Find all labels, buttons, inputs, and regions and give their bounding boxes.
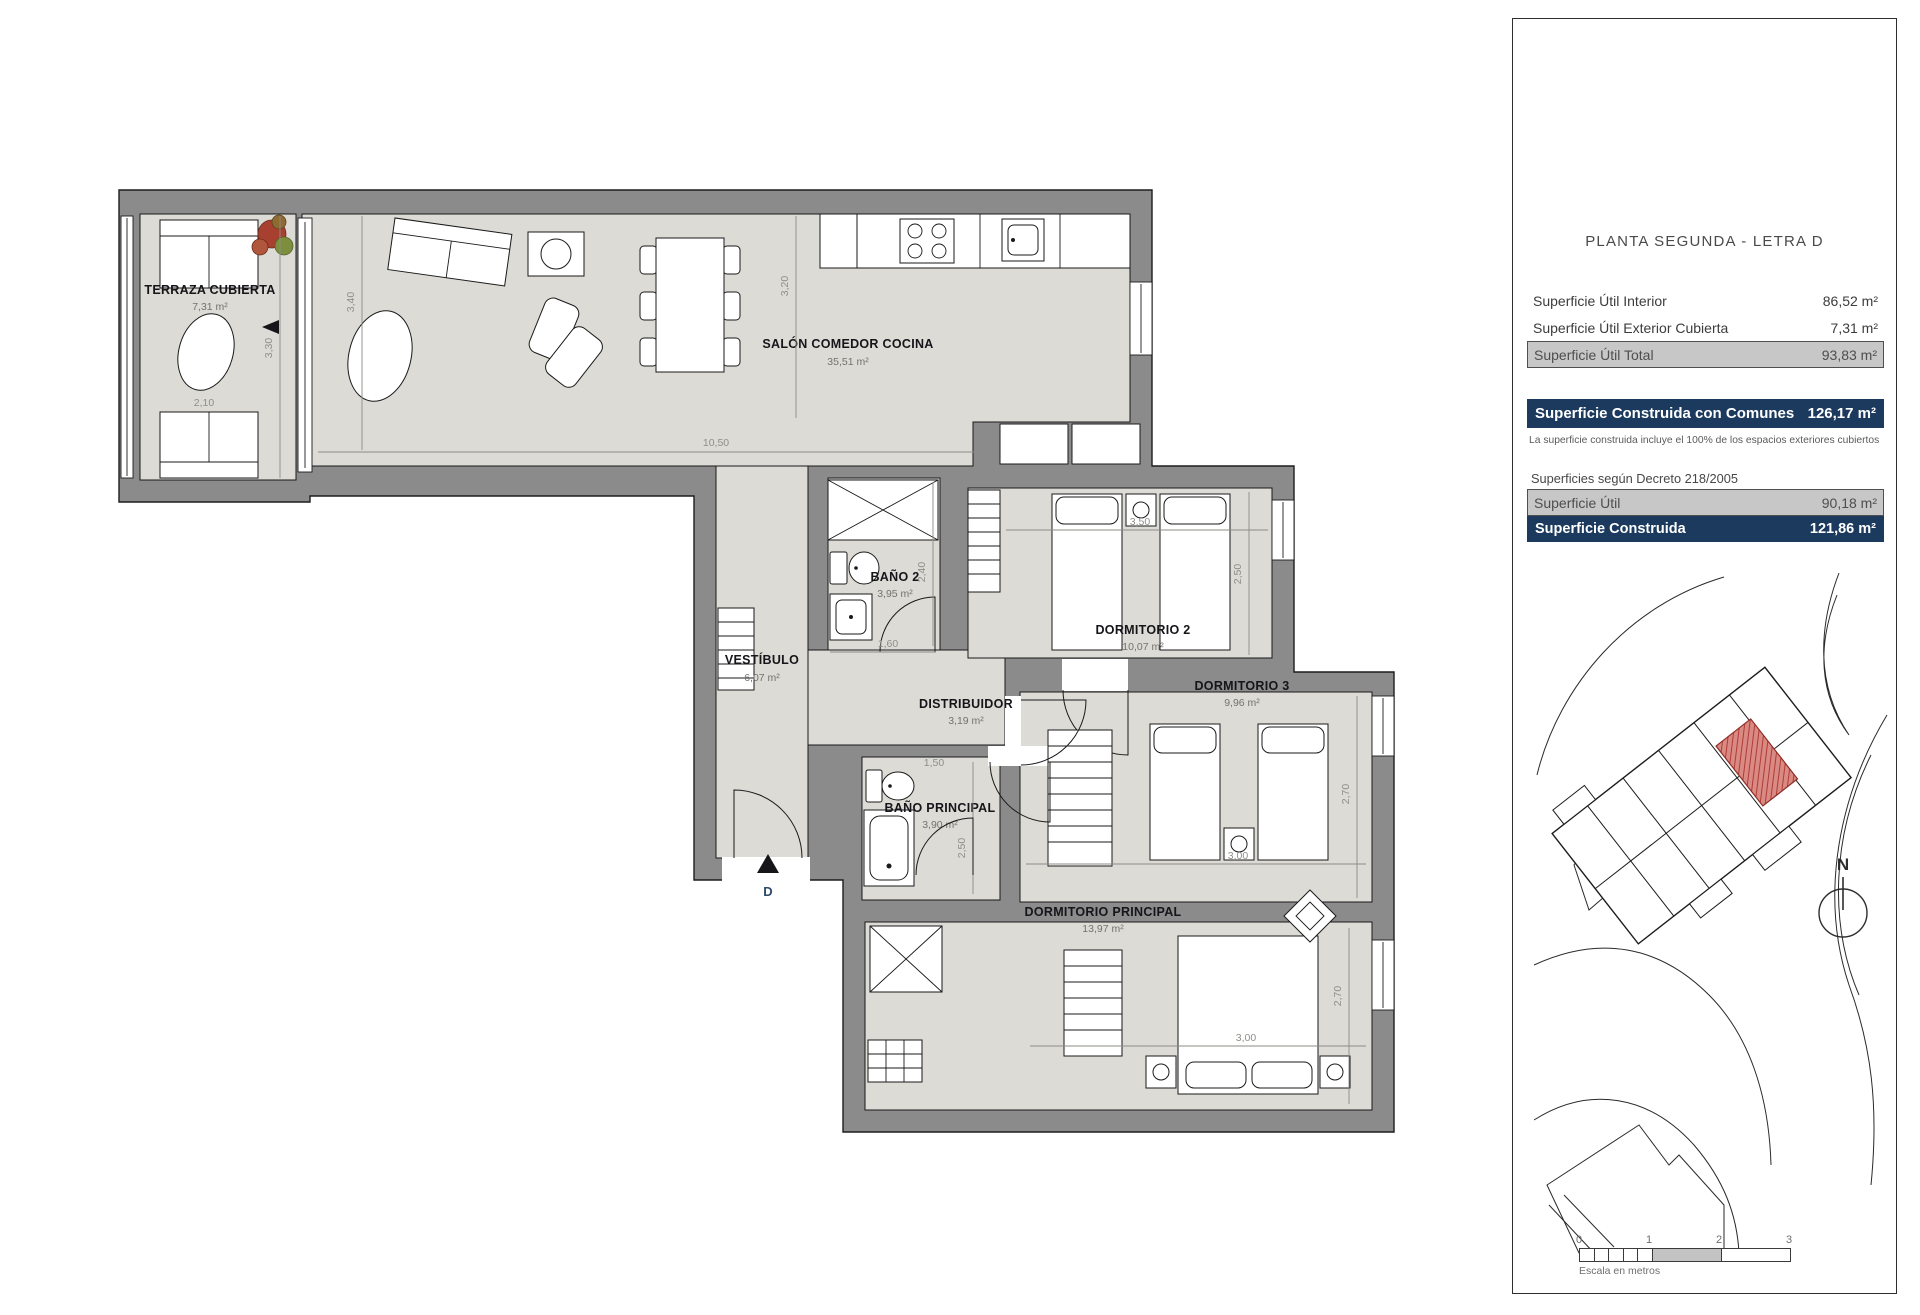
dim-dorm2-h: 2,50 [1232,564,1244,585]
fridge [820,214,857,268]
surface-row-value: 93,83 m² [1822,347,1877,363]
banop-label: BAÑO PRINCIPAL [885,800,996,815]
dim-salon-w: 10,50 [703,437,729,449]
banop-area: 3,90 m² [922,819,958,831]
surface-row-total: Superficie Útil Total 93,83 m² [1527,341,1884,368]
dorm2-area: 10,07 m² [1122,641,1164,653]
toilet-tank [830,552,847,584]
scale-tick: 3 [1786,1234,1792,1246]
salon-label: SALÓN COMEDOR COCINA [762,336,933,351]
terraza-area: 7,31 m² [192,301,228,313]
dim-terraza-w: 2,10 [194,397,215,409]
scale-strip [1579,1248,1791,1262]
distribuidor-area: 3,19 m² [948,715,984,727]
surface-row-label: Superficie Útil Exterior Cubierta [1533,320,1728,336]
table-lamp [541,239,571,269]
dormp-door-opening [988,746,1052,766]
dim-banop-h: 2,50 [956,838,968,859]
dorm2-closet [968,490,1000,592]
bano2-area: 3,95 m² [877,588,913,600]
floorplan-canvas: TERRAZA CUBIERTA 7,31 m² 3,30 2,10 [0,0,1512,1310]
north-arrow: N [1808,855,1878,965]
surface-row-label: Superficie Útil Interior [1533,293,1667,309]
surface-row-label: Superficie Útil Total [1534,347,1654,363]
scale-bar: 0 1 2 3 Escala en metros [1579,1234,1791,1277]
dormp-label: DORMITORIO PRINCIPAL [1025,905,1182,919]
dim-terraza-h: 3,30 [263,338,275,359]
entrance-letter: D [763,884,772,899]
decree-heading: Superficies según Decreto 218/2005 [1531,471,1738,486]
dining-table [656,238,724,372]
dorm2-label: DORMITORIO 2 [1095,623,1190,637]
dim-dorm3-h: 2,70 [1340,784,1352,805]
kitchen-counter [857,214,1130,268]
scale-tick: 0 [1576,1234,1582,1246]
decree-row: Superficie Útil 90,18 m² [1527,489,1884,516]
vestibulo-label: VESTÍBULO [725,652,799,667]
dorm2-door-opening [1062,659,1128,691]
surface-row: Superficie Útil Interior 86,52 m² [1527,287,1884,314]
terraza-label: TERRAZA CUBIERTA [144,283,275,297]
north-icon [1813,875,1873,945]
radiator [868,1040,922,1082]
hob [900,219,954,263]
scale-tick: 1 [1646,1234,1652,1246]
north-label: N [1808,855,1878,875]
bar-value: 126,17 m² [1808,405,1876,422]
surface-row-value: 86,52 m² [1823,293,1878,309]
salon-area: 35,51 m² [827,356,869,368]
dim-dormp-w: 3,00 [1236,1032,1257,1044]
decree-rows: Superficie Útil 90,18 m² [1527,489,1884,516]
road-curve [1824,573,1849,735]
dim-banop-w: 1,50 [924,757,945,769]
bar-label: Superficie Construida con Comunes [1535,405,1794,422]
scale-caption: Escala en metros [1579,1265,1791,1277]
dim-dorm2-w: 3,50 [1130,516,1151,528]
dining-set [640,238,740,372]
plan-title: PLANTA SEGUNDA - LETRA D [1513,233,1896,250]
construida-comunes-bar: Superficie Construida con Comunes 126,17… [1527,399,1884,428]
dim-bano2-w: 1,60 [878,638,899,650]
construida-note: La superficie construida incluye el 100%… [1529,435,1886,446]
decree-row-label: Superficie Útil [1534,495,1620,511]
road-curve [1534,948,1771,1165]
vestibulo-area: 6,07 m² [744,672,780,684]
scale-tick: 2 [1716,1234,1722,1246]
bano2-label: BAÑO 2 [870,569,919,584]
scale-ticks: 0 1 2 3 [1579,1234,1791,1248]
bar-label: Superficie Construida [1535,521,1686,537]
decree-row-value: 90,18 m² [1822,495,1877,511]
dim-bano2-h: 2,40 [916,562,928,583]
dim-dormp-h: 2,70 [1332,986,1344,1007]
kitchen [820,214,1130,268]
dorm3-closet [1048,730,1112,866]
sideboard-2 [1072,424,1140,464]
surface-rows: Superficie Útil Interior 86,52 m² Superf… [1527,287,1884,368]
dim-dorm3-w: 3,00 [1228,850,1249,862]
dim-cocina-h: 3,20 [779,276,791,297]
surface-row-value: 7,31 m² [1831,320,1878,336]
dim-salon-h: 3,40 [345,292,357,313]
floorplan-svg: TERRAZA CUBIERTA 7,31 m² 3,30 2,10 [0,0,1512,1310]
info-panel: PLANTA SEGUNDA - LETRA D Superficie Útil… [1512,18,1897,1294]
toilet-bowl-2 [882,772,914,800]
construida-bar: Superficie Construida 121,86 m² [1527,516,1884,542]
dorm3-area: 9,96 m² [1224,697,1260,709]
toilet-tank-2 [866,770,882,802]
bar-value: 121,86 m² [1810,521,1876,537]
sideboard [1000,424,1068,464]
distribuidor-label: DISTRIBUIDOR [919,697,1013,711]
dormp-area: 13,97 m² [1082,923,1124,935]
road-curve [1534,1099,1739,1253]
dorm3-label: DORMITORIO 3 [1194,679,1289,693]
surface-row: Superficie Útil Exterior Cubierta 7,31 m… [1527,314,1884,341]
